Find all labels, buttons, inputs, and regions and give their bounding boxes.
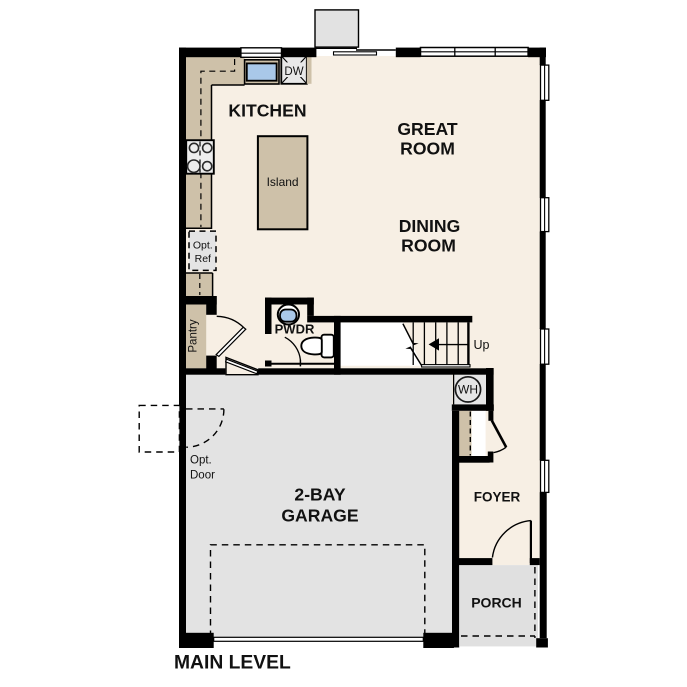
svg-text:Up: Up xyxy=(474,338,490,352)
svg-text:FOYER: FOYER xyxy=(474,490,521,505)
svg-text:ROOM: ROOM xyxy=(400,139,455,159)
svg-text:PWDR: PWDR xyxy=(275,322,315,337)
svg-text:GREAT: GREAT xyxy=(397,119,458,139)
svg-text:Ref: Ref xyxy=(195,253,211,265)
svg-text:PORCH: PORCH xyxy=(471,595,522,611)
svg-text:2-BAY: 2-BAY xyxy=(294,484,345,504)
svg-text:ROOM: ROOM xyxy=(401,235,456,255)
svg-text:Opt.: Opt. xyxy=(193,240,213,252)
svg-text:Door: Door xyxy=(190,470,215,482)
svg-text:DW: DW xyxy=(284,66,303,78)
svg-text:Pantry: Pantry xyxy=(188,319,200,352)
svg-text:GARAGE: GARAGE xyxy=(281,505,358,525)
svg-text:WH: WH xyxy=(458,383,478,397)
svg-text:KITCHEN: KITCHEN xyxy=(228,101,306,121)
svg-text:MAIN LEVEL: MAIN LEVEL xyxy=(174,653,291,674)
svg-text:Opt.: Opt. xyxy=(190,455,212,467)
svg-text:Island: Island xyxy=(267,175,299,189)
svg-text:DINING: DINING xyxy=(399,216,461,236)
